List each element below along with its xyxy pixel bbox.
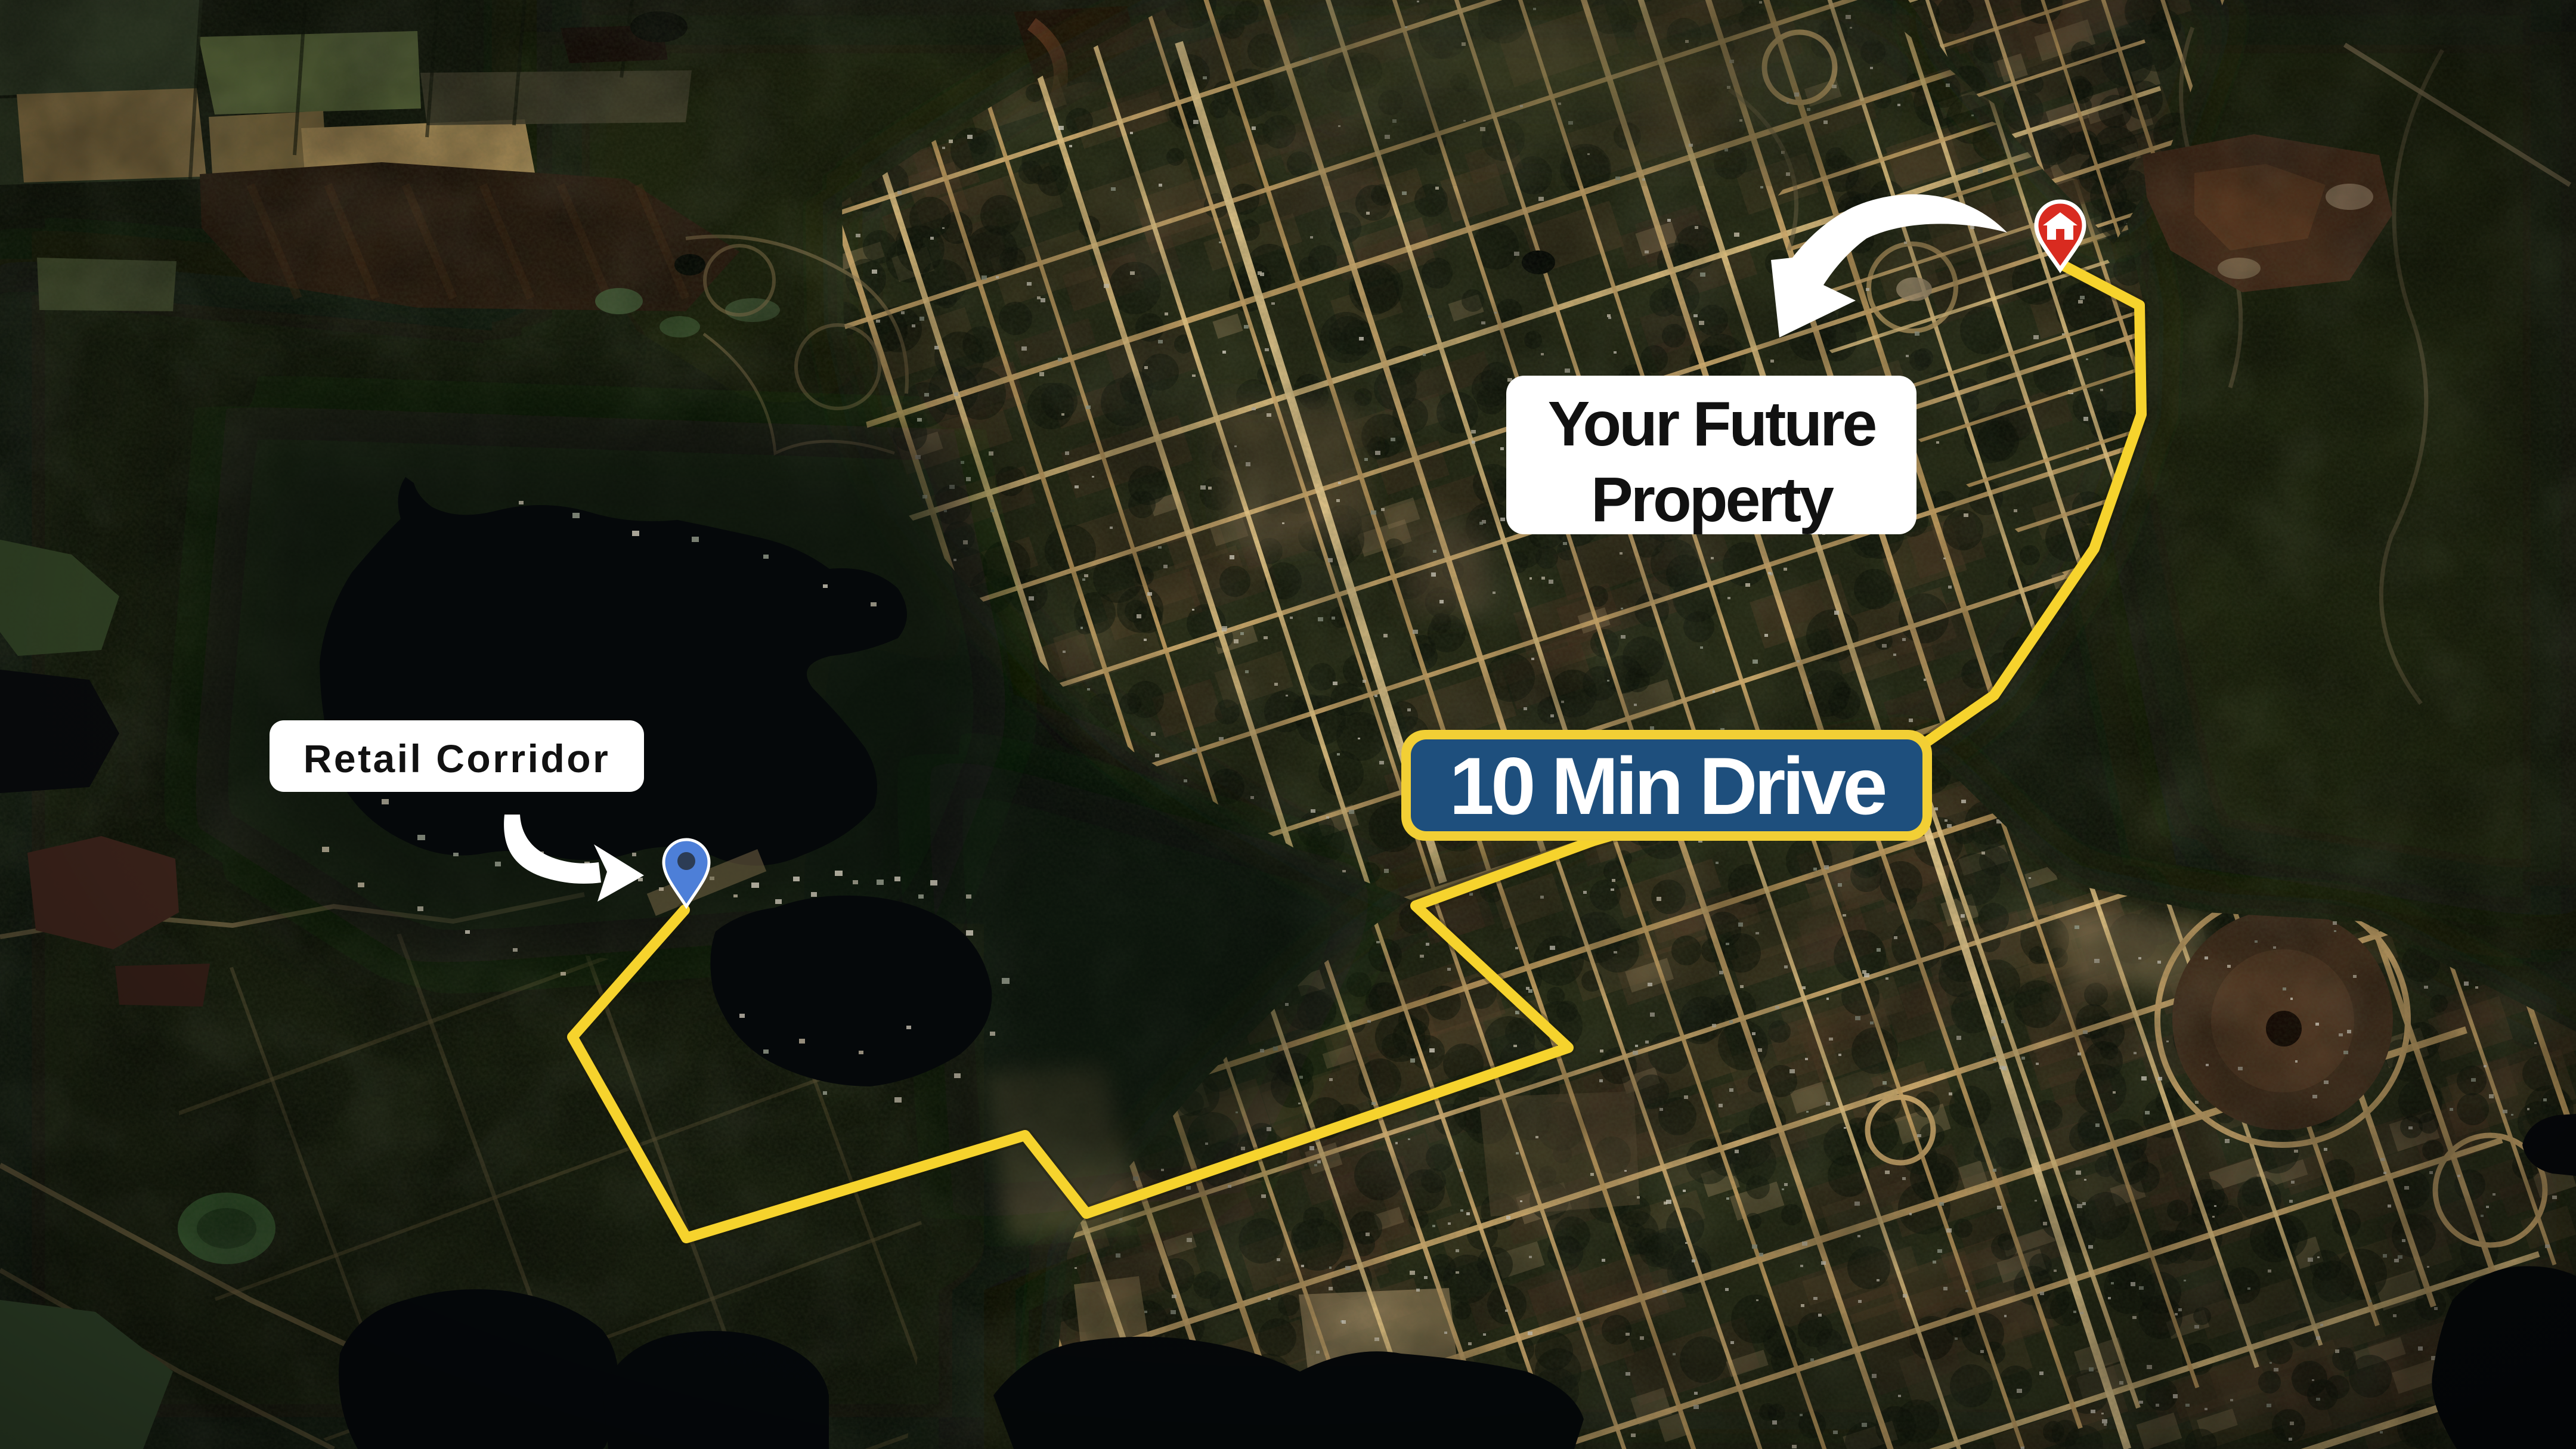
svg-text:Property: Property [1591, 465, 1834, 535]
svg-text:10 Min Drive: 10 Min Drive [1449, 741, 1885, 831]
svg-text:Your Future: Your Future [1548, 389, 1876, 459]
svg-text:Retail Corridor: Retail Corridor [304, 736, 611, 781]
